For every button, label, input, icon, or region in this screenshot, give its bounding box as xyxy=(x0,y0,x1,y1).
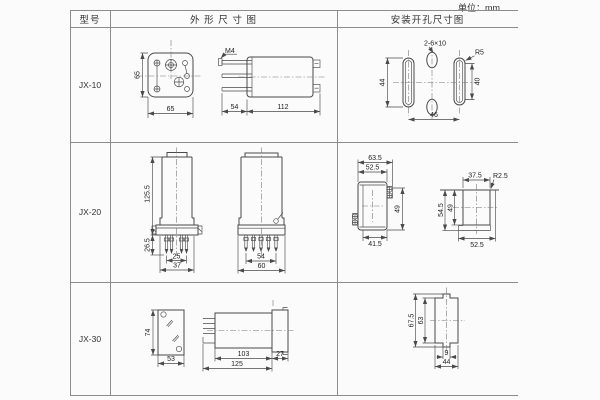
dim-label: 44 xyxy=(443,359,451,366)
dim-label: 49 xyxy=(448,204,455,212)
dim-label: 52.5 xyxy=(366,165,380,172)
dim-label: 54 xyxy=(257,254,265,261)
jx20-side-view: 54 60 xyxy=(238,148,285,274)
dim-label: 112 xyxy=(277,104,288,111)
dim-label: 63.5 xyxy=(368,155,382,162)
radius-label: R5 xyxy=(475,50,484,57)
model-label-jx10: JX-10 xyxy=(70,27,110,142)
dim-label: 65 xyxy=(135,71,142,79)
model-label-jx20: JX-20 xyxy=(70,142,110,282)
dim-label: 37 xyxy=(173,263,181,270)
dim-label: 65 xyxy=(167,106,175,113)
dim-label: 44 xyxy=(380,79,387,87)
dim-label: 25 xyxy=(173,254,181,261)
datasheet-page: 单位：mm 型号 外 形 尺 寸 图 安装开孔尺寸图 JX-10 JX-20 J… xyxy=(0,0,600,400)
dim-label: 37.5 xyxy=(468,173,482,180)
jx10-front-view: 65 65 xyxy=(135,40,202,118)
dim-label: 40 xyxy=(475,78,482,86)
dim-label: 27 xyxy=(276,351,284,358)
dim-label: 54 xyxy=(231,104,239,111)
jx30-side-view: 103 27 125 xyxy=(203,300,295,372)
dim-label: 41.5 xyxy=(368,241,382,248)
dim-label: 125 xyxy=(231,361,243,368)
dim-label: 103 xyxy=(238,351,250,358)
jx20-mounting-drawing: 63.5 52.5 49 41.5 37.5 R2.5 49 xyxy=(337,142,518,282)
jx10-mount-view: 2-6×10 R5 44 40 46 xyxy=(380,41,485,120)
radius-label: R2.5 xyxy=(493,173,508,180)
dim-label: 26.5 xyxy=(145,238,152,252)
table-border-bottom xyxy=(70,395,518,396)
jx30-mounting-drawing: 67.5 63 9 44 xyxy=(337,282,518,395)
side-pins xyxy=(244,235,278,252)
dim-label: 52.5 xyxy=(470,242,484,249)
dim-label: 74 xyxy=(145,329,152,337)
header-model: 型号 xyxy=(70,10,110,27)
jx20-outline-drawing: 125.5 26.5 25 37 xyxy=(110,142,337,282)
header-outline: 外 形 尺 寸 图 xyxy=(110,10,337,27)
dim-label: 49 xyxy=(395,205,402,213)
dim-label: 53 xyxy=(167,356,175,363)
hole-spec-label: 2-6×10 xyxy=(424,41,446,48)
jx30-front-view: 74 53 xyxy=(145,310,184,367)
jx10-mounting-drawing: 2-6×10 R5 44 40 46 xyxy=(337,27,518,142)
model-label-jx30: JX-30 xyxy=(70,282,110,395)
jx30-outline-drawing: 74 53 103 27 125 xyxy=(110,282,337,395)
jx10-outline-drawing: 65 65 M4 54 112 xyxy=(110,27,337,142)
dim-label: 46 xyxy=(430,112,438,119)
jx10-side-view: M4 54 112 xyxy=(219,48,327,116)
dim-label: 54.5 xyxy=(438,203,445,217)
jx30-mount-view: 67.5 63 9 44 xyxy=(408,288,465,370)
header-mounting: 安装开孔尺寸图 xyxy=(337,10,518,27)
dim-label: 125.5 xyxy=(145,185,152,203)
dim-label: 67.5 xyxy=(408,314,415,328)
jx20-front-view: 125.5 26.5 25 37 xyxy=(145,148,203,274)
dim-label: 60 xyxy=(258,263,266,270)
jx20-mount-view-b: 37.5 R2.5 49 54.5 52.5 xyxy=(438,173,508,250)
dim-label: 9 xyxy=(445,350,449,357)
jx20-mount-view-a: 63.5 52.5 49 41.5 xyxy=(352,155,405,248)
dim-label: 63 xyxy=(418,317,425,325)
